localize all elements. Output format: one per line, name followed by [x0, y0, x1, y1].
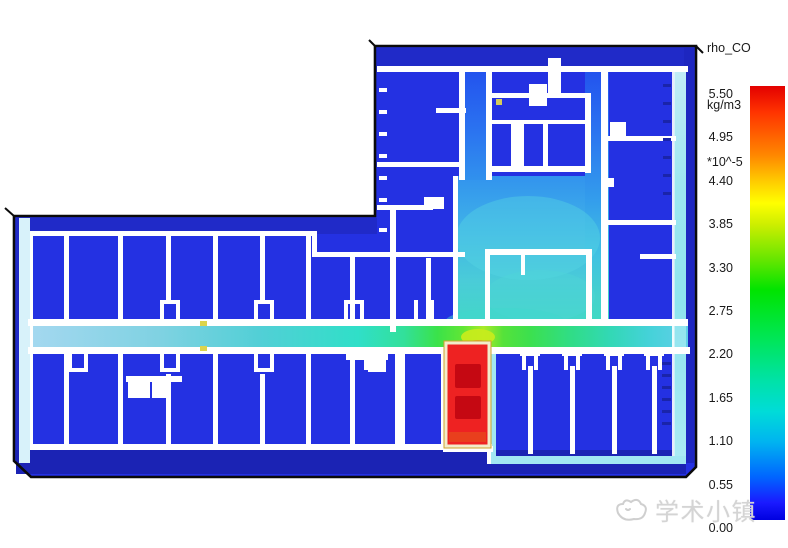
- colorbar-tick-label: 3.85: [688, 217, 733, 231]
- colorbar-tick-label: 0.55: [688, 478, 733, 492]
- colorbar-tick-label: 5.50: [688, 87, 733, 101]
- colorbar-tick-label: 0.00: [688, 521, 733, 535]
- main-corridor-contour: [28, 326, 688, 347]
- vehicle-block: [455, 364, 481, 388]
- colorbar-tick-label: 2.75: [688, 304, 733, 318]
- colorbar-tick-label: 3.30: [688, 261, 733, 275]
- vehicle-block: [455, 396, 481, 419]
- colorbar-tick-label: 4.95: [688, 130, 733, 144]
- colorbar-tick-label: 2.20: [688, 347, 733, 361]
- cfd-co-density-visualization: rho_CO kg/m3 *10^-5 5.504.954.403.853.30…: [0, 0, 788, 548]
- colorbar-tick-label: 4.40: [688, 174, 733, 188]
- floorplan-contour-plot: [0, 0, 788, 548]
- colorbar-gradient: [750, 86, 785, 520]
- co-source-room: [445, 342, 491, 448]
- colorbar-title: rho_CO: [707, 39, 751, 58]
- colorbar-tick-label: 1.65: [688, 391, 733, 405]
- colorbar-scale: *10^-5: [707, 153, 751, 172]
- colorbar-tick-label: 1.10: [688, 434, 733, 448]
